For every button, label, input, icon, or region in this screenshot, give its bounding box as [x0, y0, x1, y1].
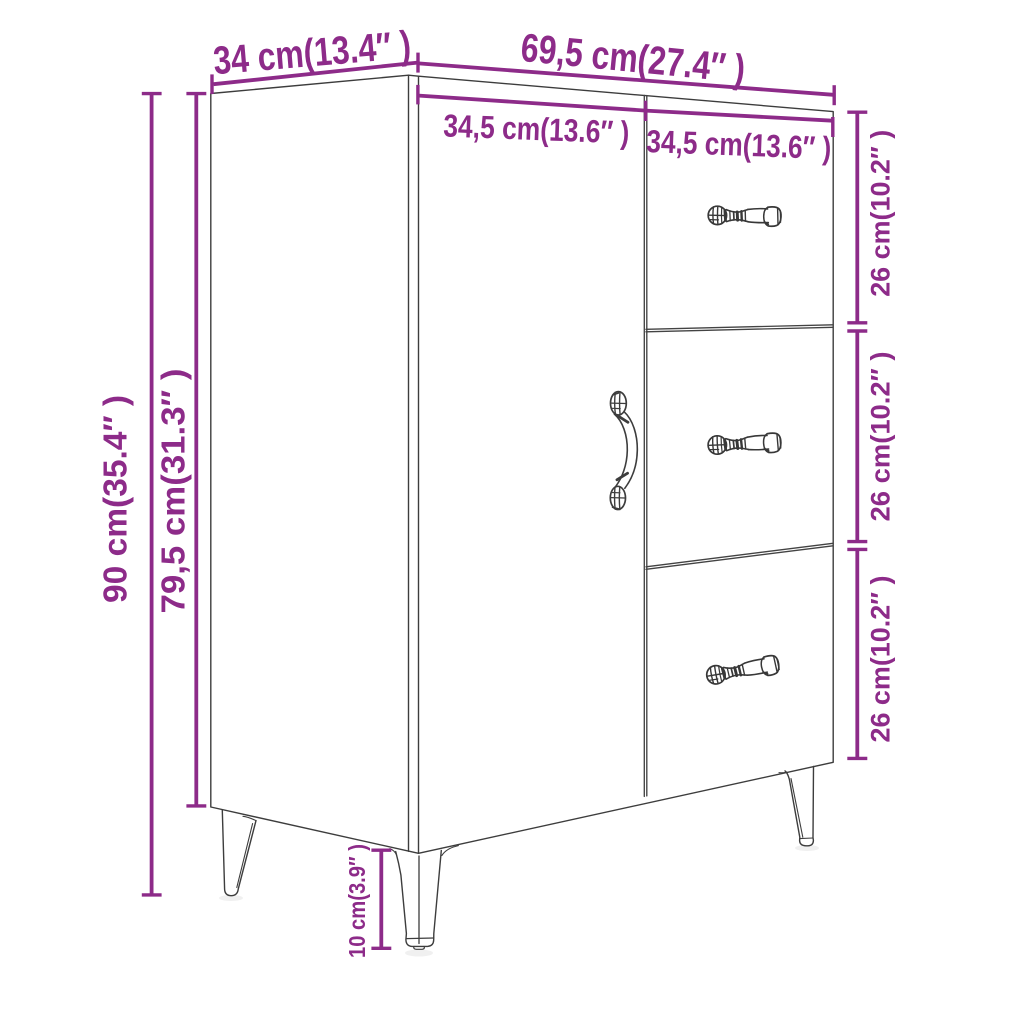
- svg-text:34,5 cm(13.6″ ): 34,5 cm(13.6″ ): [443, 107, 630, 150]
- svg-text:90 cm(35.4″ ): 90 cm(35.4″ ): [97, 395, 134, 603]
- svg-text:26 cm(10.2″ ): 26 cm(10.2″ ): [866, 130, 896, 297]
- svg-text:34,5 cm(13.6″ ): 34,5 cm(13.6″ ): [646, 123, 832, 166]
- svg-text:79,5 cm(31.3″ ): 79,5 cm(31.3″ ): [155, 369, 192, 614]
- svg-text:10 cm(3.9″ ): 10 cm(3.9″ ): [344, 844, 370, 958]
- svg-text:26 cm(10.2″ ): 26 cm(10.2″ ): [866, 352, 896, 522]
- svg-text:26 cm(10.2″ ): 26 cm(10.2″ ): [866, 576, 896, 743]
